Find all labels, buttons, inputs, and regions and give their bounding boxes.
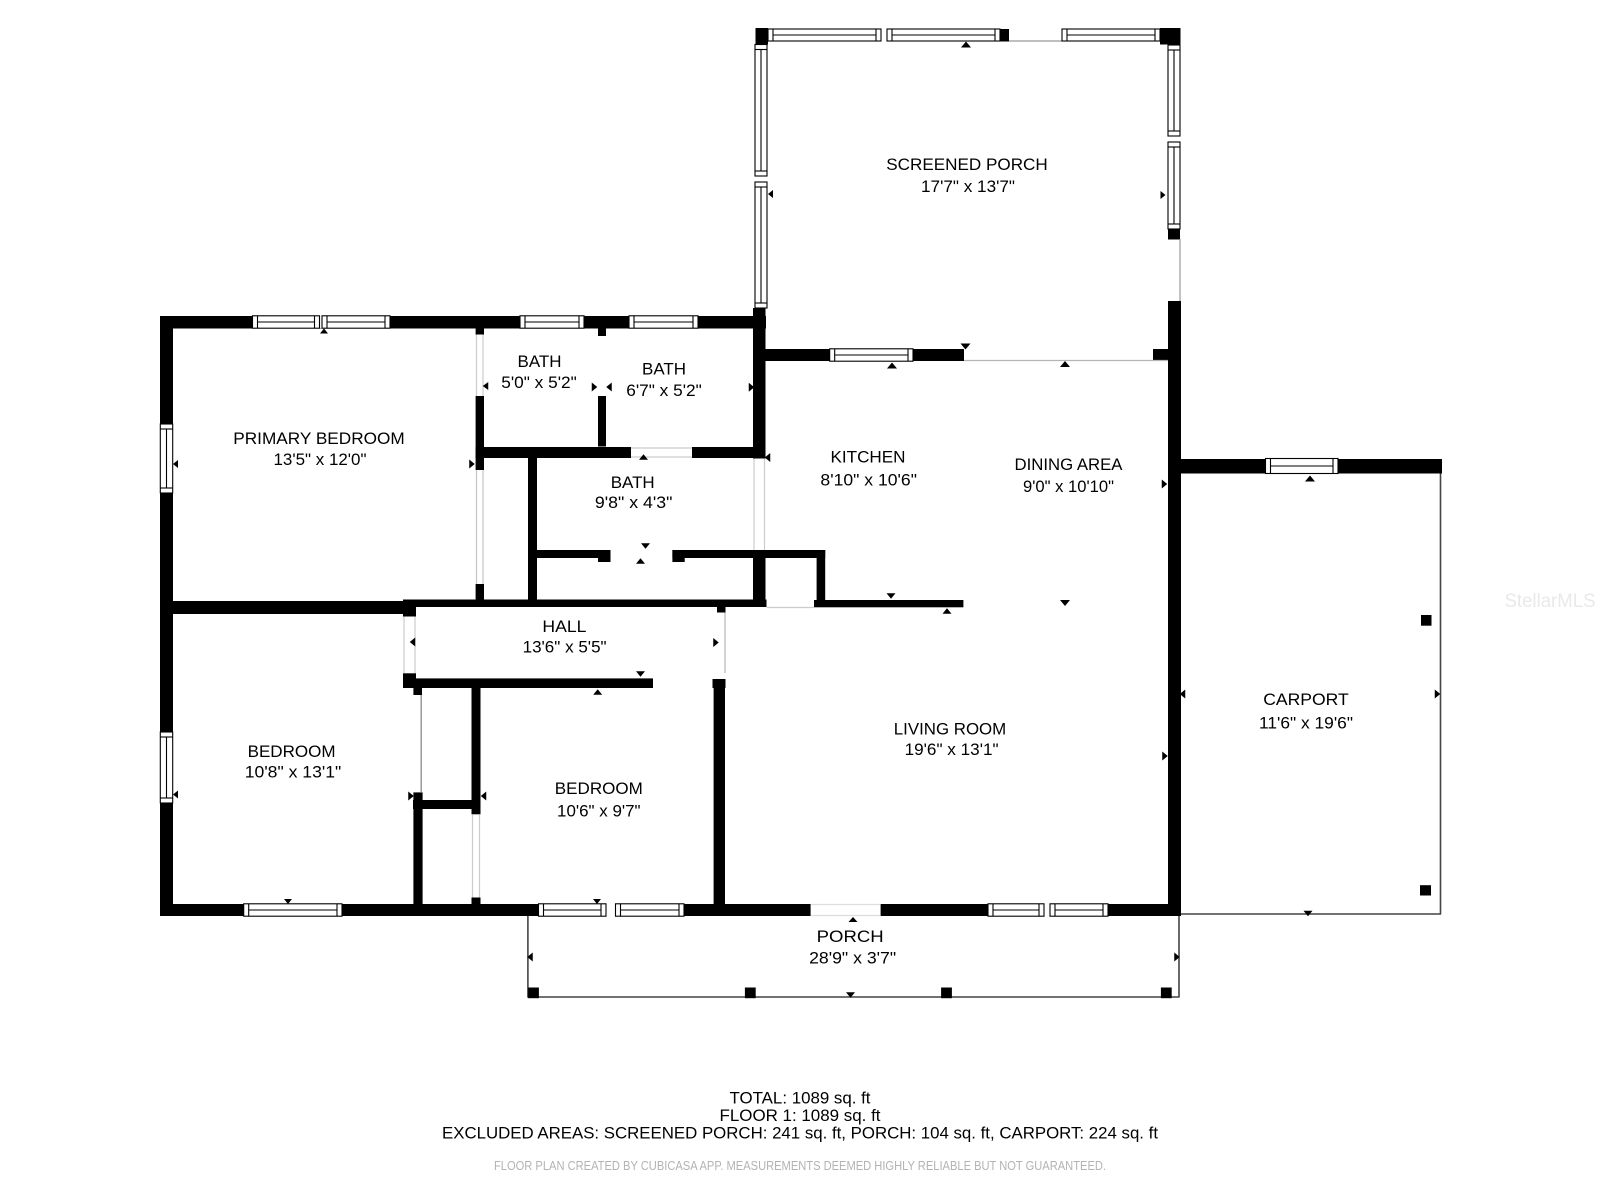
svg-text:10'6" x 9'7": 10'6" x 9'7" xyxy=(557,801,641,820)
svg-text:19'6" x 13'1": 19'6" x 13'1" xyxy=(905,740,999,759)
svg-text:BATH: BATH xyxy=(611,473,655,492)
svg-text:BEDROOM: BEDROOM xyxy=(555,779,643,798)
svg-text:BATH: BATH xyxy=(518,352,562,371)
svg-text:PORCH: PORCH xyxy=(817,927,884,946)
svg-text:PRIMARY BEDROOM: PRIMARY BEDROOM xyxy=(233,429,405,448)
svg-text:TOTAL: 1089 sq. ft: TOTAL: 1089 sq. ft xyxy=(730,1088,871,1107)
svg-text:9'0" x 10'10": 9'0" x 10'10" xyxy=(1023,477,1114,496)
svg-text:LIVING ROOM: LIVING ROOM xyxy=(894,719,1007,738)
svg-text:EXCLUDED AREAS: SCREENED PORCH: EXCLUDED AREAS: SCREENED PORCH: 241 sq. … xyxy=(442,1123,1158,1142)
svg-text:9'8" x 4'3": 9'8" x 4'3" xyxy=(595,493,673,512)
svg-text:DINING AREA: DINING AREA xyxy=(1015,455,1124,474)
svg-text:FLOOR PLAN CREATED BY CUBICASA: FLOOR PLAN CREATED BY CUBICASA APP. MEAS… xyxy=(494,1158,1106,1173)
svg-text:HALL: HALL xyxy=(542,617,586,636)
svg-text:5'0" x 5'2": 5'0" x 5'2" xyxy=(501,373,577,392)
svg-text:BEDROOM: BEDROOM xyxy=(248,742,336,761)
svg-text:11'6" x 19'6": 11'6" x 19'6" xyxy=(1259,713,1353,732)
svg-text:8'10" x 10'6": 8'10" x 10'6" xyxy=(820,470,917,489)
svg-text:10'8" x 13'1": 10'8" x 13'1" xyxy=(245,762,342,781)
svg-text:17'7" x 13'7": 17'7" x 13'7" xyxy=(921,177,1015,196)
svg-text:FLOOR 1: 1089 sq. ft: FLOOR 1: 1089 sq. ft xyxy=(720,1106,881,1125)
svg-text:28'9" x 3'7": 28'9" x 3'7" xyxy=(809,948,896,967)
svg-text:StellarMLS: StellarMLS xyxy=(1505,591,1596,612)
svg-text:13'6" x 5'5": 13'6" x 5'5" xyxy=(523,637,607,656)
svg-text:KITCHEN: KITCHEN xyxy=(831,447,906,466)
svg-text:CARPORT: CARPORT xyxy=(1263,690,1349,709)
svg-text:6'7" x 5'2": 6'7" x 5'2" xyxy=(626,381,702,400)
svg-text:BATH: BATH xyxy=(642,359,686,378)
svg-text:13'5" x 12'0": 13'5" x 12'0" xyxy=(274,450,367,469)
svg-text:SCREENED PORCH: SCREENED PORCH xyxy=(886,155,1048,174)
